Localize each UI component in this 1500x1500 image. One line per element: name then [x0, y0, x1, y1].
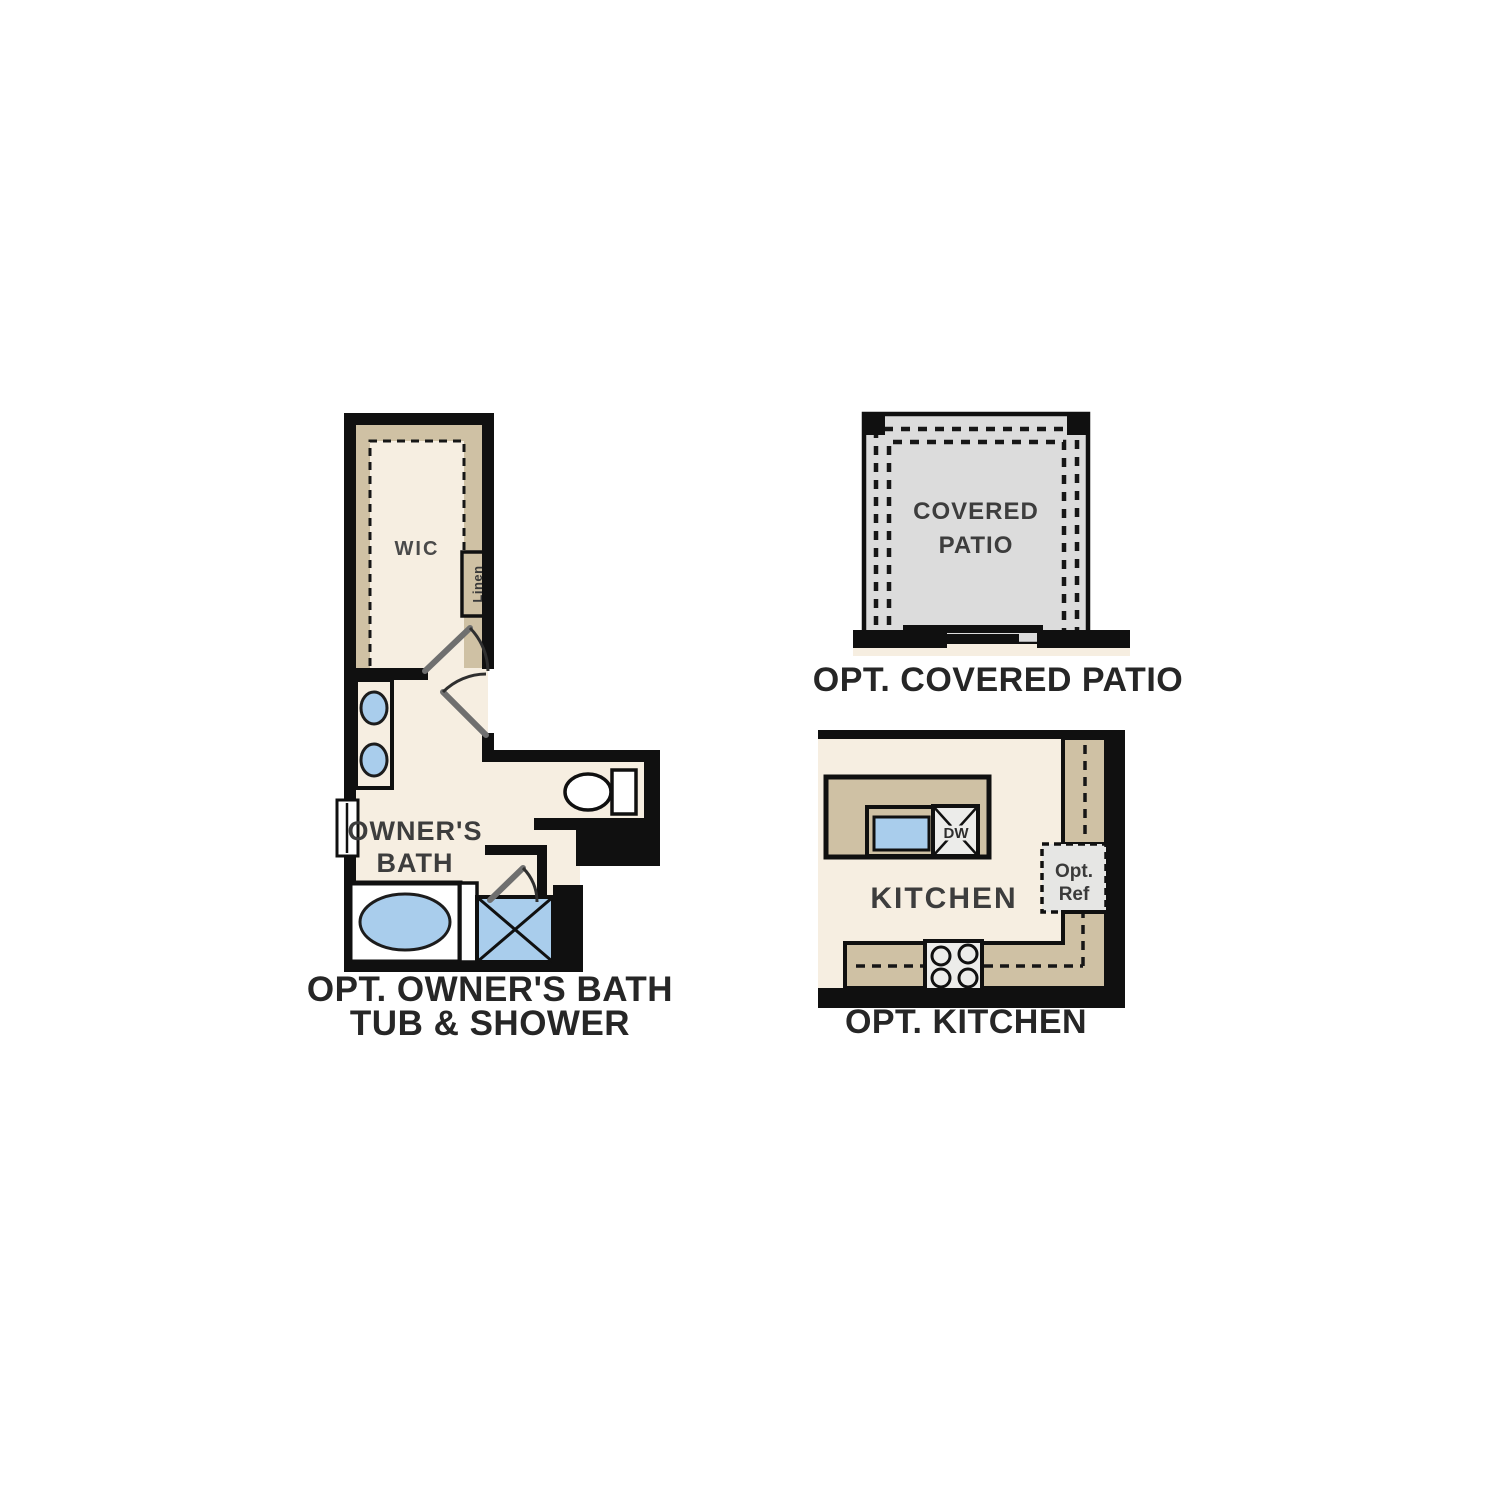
owners-bath-label-line1: OWNER'S — [348, 816, 483, 846]
owners-bath-plan: Linen WIC OWNER'S BATH — [307, 413, 673, 1043]
kitchen-caption: OPT. KITCHEN — [845, 1003, 1087, 1041]
vanity-sink-2 — [361, 744, 387, 776]
toilet-tank — [612, 770, 636, 814]
slider-track — [903, 625, 1043, 633]
island-sink — [874, 817, 929, 850]
patio-house-wall-right — [1037, 630, 1130, 648]
slider-panel — [945, 634, 1019, 642]
patio-post-right — [1067, 416, 1086, 435]
tub-basin — [360, 894, 450, 950]
owners-bath-caption-line2: TUB & SHOWER — [350, 1004, 630, 1043]
kitchen-right-wall — [1106, 730, 1125, 1008]
covered-patio-caption: OPT. COVERED PATIO — [813, 661, 1183, 699]
bath-jog-wall-v — [537, 845, 547, 897]
opt-ref-label-line2: Ref — [1059, 884, 1090, 905]
wc-top-wall — [482, 750, 660, 762]
kitchen-plan: DW Opt. Ref KITCHEN OPT. KITCHEN — [818, 730, 1125, 1041]
patio-post-left — [866, 416, 885, 435]
patio-label-line1: COVERED — [913, 498, 1039, 525]
dishwasher-label: DW — [944, 825, 970, 842]
toilet-bowl — [565, 774, 611, 810]
kitchen-label: KITCHEN — [870, 882, 1017, 915]
owners-bath-label-line2: BATH — [377, 848, 454, 878]
floorplan-options-sheet: Linen WIC OWNER'S BATH — [0, 0, 1500, 1500]
opt-ref-label-line1: Opt. — [1055, 861, 1093, 882]
bath-wall-top — [344, 413, 494, 425]
wic-label: WIC — [395, 538, 440, 560]
covered-patio-plan: COVERED PATIO OPT. COVERED PATIO — [813, 414, 1183, 699]
patio-label-line2: PATIO — [939, 532, 1014, 559]
floorplan-canvas: Linen WIC OWNER'S BATH — [0, 0, 1500, 1500]
wc-corner-block — [576, 818, 660, 866]
tub-shower-divider — [460, 883, 477, 962]
patio-floor — [864, 414, 1088, 644]
vanity-sink-1 — [361, 692, 387, 724]
bath-wall-right-upper — [482, 413, 494, 669]
